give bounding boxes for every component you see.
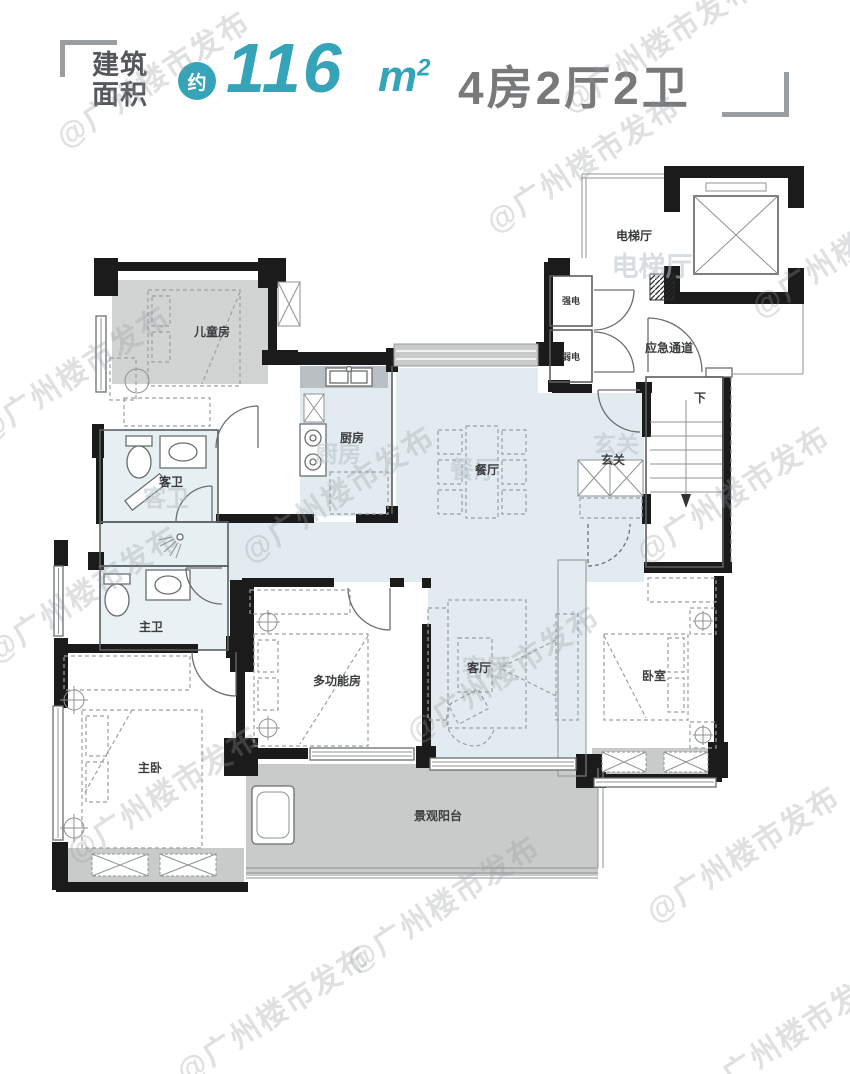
multiroom-bed (254, 634, 368, 746)
room-label-master-bath: 主卫 (139, 619, 163, 634)
multiroom-wardrobe (250, 590, 350, 614)
room-label-balcony: 景观阳台 (414, 808, 462, 823)
window-children-west (96, 316, 106, 392)
master-bedroom-door (192, 652, 236, 696)
window-living-balcony (430, 758, 576, 770)
room-label-master-bedroom: 主卧 (138, 760, 162, 775)
floorplan-page: 建筑 面积 约 116 m2 4房2厅2卫 (0, 0, 850, 1074)
room-label-entry: 玄关 (601, 452, 625, 467)
window-dining-north (394, 344, 538, 366)
children-wardrobe (124, 398, 210, 426)
window-bedroom-south (594, 778, 716, 787)
room-label-dining: 餐厅 (475, 462, 499, 477)
master-bed (82, 710, 202, 848)
window-master-west (53, 706, 63, 840)
room-label-living: 客厅 (466, 660, 491, 675)
window-multiroom-south (310, 748, 414, 760)
children-door (216, 406, 258, 448)
room-label-children: 儿童房 (193, 324, 230, 339)
guest-toilet (126, 436, 152, 478)
stairs (650, 400, 722, 508)
stairs-down-label: 下 (694, 391, 706, 405)
master-toilet (104, 574, 130, 616)
guest-sink (160, 436, 206, 468)
floor-plan: 电梯厅 玄关 厨房 餐厅 客卫 客厅 儿童房 厨房 餐厅 玄关 电梯厅 应急通道… (0, 0, 850, 1074)
ceiling-lamp-icon (256, 716, 280, 740)
washing-machine (252, 786, 294, 844)
room-ghost-elevator-hall: 电梯厅 (612, 252, 693, 282)
ceiling-lamp-icon (60, 814, 88, 842)
window-masterbath-west (54, 566, 63, 636)
shaft-xbox (278, 282, 300, 326)
strong-electric-door (594, 290, 634, 330)
room-label-weak-electric: 弱电 (562, 351, 580, 362)
bedroom-wardrobe (648, 578, 716, 602)
ceiling-lamp-icon (693, 611, 713, 631)
weak-electric-door (594, 332, 634, 372)
room-label-kitchen: 厨房 (340, 430, 364, 445)
multiroom-door (348, 588, 390, 630)
room-label-multiroom: 多功能房 (313, 673, 361, 688)
kitchen-xbox (304, 394, 324, 422)
room-label-guest-bath: 客卫 (158, 474, 183, 489)
master-wardrobe (64, 656, 190, 690)
room-label-emergency: 应急通道 (645, 340, 693, 355)
master-sink (146, 570, 190, 600)
kitchen-sink (326, 367, 372, 387)
master-sill (64, 848, 244, 882)
room-label-bedroom: 卧室 (642, 668, 666, 683)
room-label-strong-electric: 强电 (562, 295, 580, 306)
room-label-elevator-hall: 电梯厅 (616, 228, 652, 243)
